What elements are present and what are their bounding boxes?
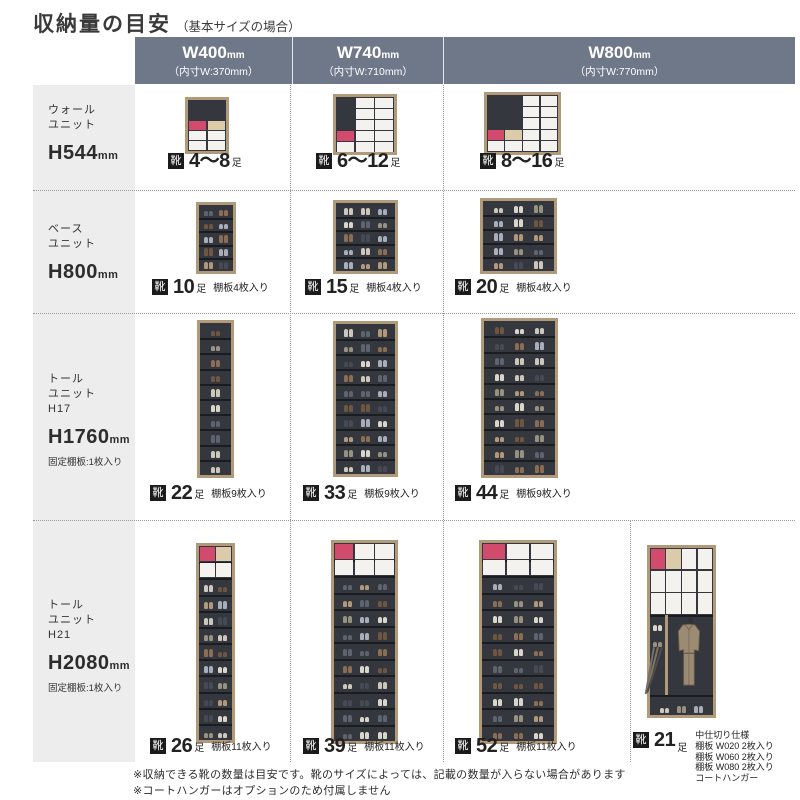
shoe-box xyxy=(698,593,712,614)
shoe xyxy=(348,666,352,673)
shelf-board xyxy=(482,675,554,677)
shoe xyxy=(539,683,543,690)
shelf-board xyxy=(200,429,231,431)
shelf-board xyxy=(482,576,554,578)
shoe xyxy=(204,635,208,641)
unit-height: H544mm xyxy=(48,142,118,165)
shelf-board xyxy=(336,384,395,386)
shoe xyxy=(349,208,353,214)
shoe-box xyxy=(682,593,696,614)
tall-unit-h21-w400-illustration xyxy=(196,543,235,743)
shoe xyxy=(209,618,213,625)
shelf-board xyxy=(199,692,232,694)
shoe xyxy=(348,616,352,624)
shoe xyxy=(204,700,208,705)
shoe xyxy=(499,208,503,213)
shoe xyxy=(211,451,215,458)
shoe xyxy=(493,699,497,706)
shoe-box xyxy=(355,560,374,575)
unit-name: ベースユニット xyxy=(48,222,118,252)
shoe-box xyxy=(523,107,539,117)
shoe xyxy=(499,233,503,241)
shoe-box xyxy=(507,544,530,559)
capacity-count: 15 xyxy=(326,277,347,297)
shoe xyxy=(519,684,523,689)
shoe-box xyxy=(375,109,393,119)
shoe xyxy=(383,601,387,607)
shoe xyxy=(209,262,213,269)
shoe xyxy=(535,328,539,334)
shoe xyxy=(494,263,498,269)
shoe xyxy=(499,263,503,269)
tall-unit-h21-divider-coat-illustration xyxy=(647,545,716,718)
capacity-count: 22 xyxy=(171,483,192,503)
shoe xyxy=(360,683,364,689)
shoe-box xyxy=(541,107,557,117)
shelf-board xyxy=(199,258,233,260)
shelf-board xyxy=(334,609,395,611)
shoe xyxy=(216,451,220,458)
shelf-board xyxy=(482,708,554,710)
shoe xyxy=(361,404,365,412)
capacity-count: 8〜16 xyxy=(501,151,552,171)
shoe xyxy=(218,617,222,625)
shoe xyxy=(534,601,538,607)
shoe xyxy=(498,683,502,689)
shelf-board xyxy=(482,659,554,661)
shoe-box xyxy=(375,120,393,130)
shoe xyxy=(365,683,369,689)
shelf-board xyxy=(483,243,554,245)
shoe xyxy=(344,391,348,397)
unit-name-line: ベース xyxy=(48,222,118,237)
shoe-box xyxy=(666,549,680,570)
shelf-count-note: 棚板4枚入り xyxy=(516,279,572,294)
wall-unit-w740-illustration xyxy=(333,94,397,155)
shoe xyxy=(515,375,519,380)
shoe xyxy=(349,437,353,442)
shoe xyxy=(519,668,523,673)
shelf-board xyxy=(336,399,395,401)
shoe xyxy=(495,389,499,396)
shoe xyxy=(204,602,208,608)
shoe xyxy=(366,344,370,352)
shoe xyxy=(535,391,539,396)
base-unit-w740-illustration xyxy=(333,200,398,274)
shelf-board xyxy=(334,593,395,595)
capacity-count: 6〜12 xyxy=(337,151,388,171)
shoe xyxy=(348,684,352,689)
shoe-box xyxy=(698,549,712,570)
shoe xyxy=(361,419,365,427)
shoe-box xyxy=(666,593,680,614)
shelf-board xyxy=(482,725,554,727)
capacity-count: 26 xyxy=(171,736,192,756)
shoe xyxy=(204,237,208,243)
shoe-box xyxy=(356,98,374,108)
shoe xyxy=(535,358,539,365)
column-width-label: W800mm xyxy=(444,44,795,65)
shoe xyxy=(218,652,222,657)
shelf-board xyxy=(336,459,395,461)
unit-name-line: H21 xyxy=(48,628,130,643)
shoe xyxy=(361,376,365,382)
shoe xyxy=(539,617,543,624)
shoe xyxy=(378,262,382,269)
shoe xyxy=(383,649,387,656)
shoe-box xyxy=(507,560,530,575)
shoe xyxy=(218,683,222,689)
capacity-unit: 足 xyxy=(499,486,509,501)
shoe xyxy=(500,344,504,350)
shoe xyxy=(366,450,370,457)
shoe-box xyxy=(651,571,665,592)
shoe xyxy=(515,391,519,396)
shoe xyxy=(204,666,208,673)
capacity-label: 靴22足棚板9枚入り xyxy=(150,483,267,503)
shoe xyxy=(495,374,499,380)
shoe xyxy=(539,716,543,723)
spec-note-line: 中仕切り仕様 xyxy=(695,730,795,741)
shelf-board xyxy=(200,445,231,447)
shoe xyxy=(540,391,544,396)
shoe-box xyxy=(208,121,226,130)
shoe xyxy=(378,360,382,367)
shoe xyxy=(378,406,382,412)
shoe xyxy=(211,467,215,473)
shoe xyxy=(514,649,518,656)
capacity-label: 靴20足棚板4枚入り xyxy=(455,277,572,297)
shoe-box xyxy=(356,109,374,119)
shelf-board xyxy=(482,692,554,694)
shoe xyxy=(500,389,504,396)
shoe xyxy=(378,632,382,640)
tall-unit-h17-w400-illustration xyxy=(197,320,234,478)
shoe xyxy=(519,234,523,241)
base-unit-w400-illustration xyxy=(196,202,236,274)
shoe xyxy=(539,601,543,607)
capacity-count: 21 xyxy=(654,730,675,750)
shoe xyxy=(514,249,518,255)
shoe xyxy=(534,701,538,706)
shoe xyxy=(216,376,220,382)
shelf-board xyxy=(484,367,555,369)
row-labels-column: ウォールユニットH544mmベースユニットH800mmトールユニットH17H17… xyxy=(33,85,135,762)
shoe xyxy=(519,601,523,607)
shoe-box xyxy=(505,130,521,140)
shoe xyxy=(223,652,227,657)
shoe xyxy=(515,343,519,350)
shoe xyxy=(216,467,220,473)
capacity-label: 靴6〜12足 xyxy=(316,151,400,171)
column-header-w800: W800mm （内寸W:770mm） xyxy=(443,37,795,84)
shoe xyxy=(520,467,524,473)
shoe xyxy=(223,587,227,593)
shoe xyxy=(348,635,352,640)
shelf-board xyxy=(484,398,555,400)
shoe xyxy=(219,224,223,229)
shoe-box xyxy=(523,96,539,106)
shoe xyxy=(378,329,382,337)
shelf-board xyxy=(484,429,555,431)
shoe xyxy=(223,635,227,641)
shoe xyxy=(219,262,223,269)
shoe xyxy=(209,635,213,641)
shoe-box xyxy=(189,131,207,140)
shoe xyxy=(498,601,502,607)
shelf-board xyxy=(336,444,395,446)
footnote-coathanger-option: ※コートハンガーはオプションのため付属しません xyxy=(133,782,391,798)
shoe xyxy=(383,236,387,242)
shoe xyxy=(378,617,382,623)
shoe-box xyxy=(375,560,394,575)
shelf-count-note: 棚板9枚入り xyxy=(211,485,267,500)
shoe xyxy=(204,649,208,657)
capacity-label: 靴15足棚板4枚入り xyxy=(305,277,422,297)
shoe xyxy=(360,717,364,722)
shoe xyxy=(540,328,544,334)
capacity-unit: 足 xyxy=(499,280,509,295)
shoe xyxy=(514,633,518,640)
shoe xyxy=(498,716,502,723)
shoe-box xyxy=(200,547,215,562)
shoe xyxy=(495,420,499,427)
capacity-count: 44 xyxy=(476,483,497,503)
shoe xyxy=(365,666,369,673)
unit-height-value: H544 xyxy=(48,142,98,164)
column-width-label: W740mm xyxy=(293,44,443,65)
shoe xyxy=(344,347,348,352)
shoe xyxy=(216,405,220,412)
shoe xyxy=(520,450,524,457)
shoe xyxy=(500,420,504,427)
unit-label-block: トールユニットH21H2080mm固定棚板:1枚入り xyxy=(48,598,130,694)
shoe xyxy=(209,224,213,229)
shoe-box xyxy=(523,118,539,128)
shoe xyxy=(211,389,215,397)
shoe xyxy=(344,467,348,472)
shoe xyxy=(209,666,213,673)
shoe xyxy=(360,617,364,624)
shoe xyxy=(204,618,208,625)
capacity-count: 39 xyxy=(324,736,345,756)
shoe xyxy=(494,221,498,227)
shoe xyxy=(539,665,543,673)
shelf-board xyxy=(199,643,232,645)
shoe xyxy=(343,715,347,723)
shoe xyxy=(349,347,353,352)
shoe xyxy=(366,404,370,412)
capacity-label: 靴26足棚板11枚入り xyxy=(150,736,272,756)
shelf-board xyxy=(199,218,233,220)
shoe xyxy=(520,403,524,411)
shoe xyxy=(535,452,539,458)
shoe xyxy=(344,234,348,242)
shoe xyxy=(539,220,543,227)
shoe-box xyxy=(531,560,554,575)
shoe xyxy=(366,391,370,397)
shoe-box xyxy=(335,544,354,559)
shelf-count-note: 棚板11枚入り xyxy=(364,738,424,753)
shelf-board xyxy=(484,444,555,446)
shoe-box xyxy=(335,560,354,575)
shoe xyxy=(365,585,369,590)
shoe xyxy=(204,682,208,690)
unit-name-line: ウォール xyxy=(48,103,118,118)
shoe xyxy=(539,701,543,706)
shoe xyxy=(349,262,353,269)
shoe xyxy=(211,435,215,443)
unit-name-line: ユニット xyxy=(48,613,130,628)
shoe xyxy=(344,450,348,457)
shoe xyxy=(378,421,382,427)
capacity-unit: 足 xyxy=(554,154,564,169)
shoe-chip: 靴 xyxy=(168,153,184,169)
shoe xyxy=(498,634,502,640)
shoe xyxy=(535,406,539,411)
tall-unit-h21-w800-illustration xyxy=(479,540,557,744)
unit-name-line: ユニット xyxy=(48,118,118,133)
shoe xyxy=(378,436,382,442)
shoe xyxy=(378,601,382,607)
shoe xyxy=(349,450,353,457)
unit-height-unit: mm xyxy=(98,269,119,281)
unit-height: H1760mm xyxy=(48,426,130,449)
shoe xyxy=(378,236,382,242)
shelf-count-note: 棚板11枚入り xyxy=(211,738,271,753)
shoe xyxy=(493,634,497,640)
capacity-unit: 足 xyxy=(349,280,359,295)
shoe xyxy=(514,262,518,269)
shoe xyxy=(360,633,364,640)
shelf-count-note: 棚板4枚入り xyxy=(366,279,422,294)
shoe xyxy=(366,376,370,382)
shoe xyxy=(493,601,497,607)
shoe xyxy=(361,208,365,214)
shoe-chip: 靴 xyxy=(455,738,471,754)
shoe xyxy=(218,601,222,608)
shoe xyxy=(520,375,524,380)
fixed-shelf-note: 固定棚板:1枚入り xyxy=(48,454,130,468)
shoe xyxy=(540,435,544,442)
shoe xyxy=(218,635,222,641)
shoe-box xyxy=(541,118,557,128)
shelf-board xyxy=(482,642,554,644)
shelf-board xyxy=(334,576,395,578)
shelf-board xyxy=(650,615,713,617)
shoe-chip: 靴 xyxy=(316,153,332,169)
shelf-board xyxy=(336,369,395,371)
shoe xyxy=(499,248,503,255)
shoe xyxy=(493,649,497,657)
shoe xyxy=(343,700,347,706)
shoe-chip: 靴 xyxy=(303,485,319,501)
column-header-w400: W400mm （内寸W:370mm） xyxy=(135,37,292,84)
shoe xyxy=(383,632,387,640)
shoe xyxy=(383,391,387,397)
shoe xyxy=(500,465,504,473)
shoe xyxy=(378,375,382,382)
shoe-box xyxy=(356,131,374,141)
shoe-box xyxy=(523,130,539,140)
shelf-board xyxy=(483,229,554,231)
shoe xyxy=(500,327,504,334)
shoe xyxy=(694,706,698,713)
shoe xyxy=(383,466,387,472)
capacity-count: 4〜8 xyxy=(189,151,230,171)
shoe xyxy=(514,684,518,689)
shelf-board xyxy=(199,724,232,726)
shoe-chip: 靴 xyxy=(150,738,166,754)
shoe xyxy=(540,342,544,350)
shelf-board xyxy=(199,245,233,247)
shoe xyxy=(361,344,365,352)
shelf-board xyxy=(334,708,395,710)
capacity-unit: 足 xyxy=(347,739,357,754)
column-divider xyxy=(290,85,291,762)
shoe xyxy=(653,625,657,631)
shoe xyxy=(366,234,370,241)
unit-label-block: ベースユニットH800mm xyxy=(48,222,118,284)
shoe xyxy=(378,466,382,472)
shoe xyxy=(494,208,498,213)
shelf-board xyxy=(336,230,395,232)
shelf-board xyxy=(336,217,395,219)
column-inner-width-label: （内寸W:710mm） xyxy=(293,65,443,79)
shoe xyxy=(209,211,213,217)
shelf-board xyxy=(199,611,232,613)
shoe xyxy=(534,235,538,241)
shoe xyxy=(219,249,223,256)
shoe-box xyxy=(682,571,696,592)
page-title-row: 収納量の目安 （基本サイズの場合） xyxy=(33,8,301,38)
shelf-board xyxy=(483,215,554,217)
shoe xyxy=(343,666,347,673)
shoe xyxy=(218,716,222,722)
shoe xyxy=(349,362,353,367)
shoe xyxy=(349,375,353,382)
shoe-box xyxy=(698,571,712,592)
shoe xyxy=(515,437,519,442)
shoe xyxy=(535,465,539,473)
shelf-board xyxy=(200,353,231,355)
shoe xyxy=(520,391,524,396)
shelf-board xyxy=(336,244,395,246)
shoe xyxy=(383,360,387,367)
shoe xyxy=(495,452,499,457)
shoe xyxy=(224,262,228,269)
shoe xyxy=(515,329,519,335)
fixed-shelf-note: 固定棚板:1枚入り xyxy=(48,680,130,694)
shoe xyxy=(218,587,222,593)
shoe xyxy=(211,346,215,351)
capacity-label: 靴44足棚板9枚入り xyxy=(455,483,572,503)
unit-height: H2080mm xyxy=(48,652,130,675)
shoe xyxy=(520,358,524,365)
shoe xyxy=(534,205,538,213)
shelf-count-note: 棚板4枚入り xyxy=(213,279,269,294)
unit-name: トールユニットH17 xyxy=(48,372,130,417)
shoe xyxy=(378,668,382,673)
shelf-board xyxy=(484,413,555,415)
shelf-board xyxy=(200,460,231,462)
capacity-unit: 足 xyxy=(677,739,687,754)
shoe xyxy=(360,700,364,706)
shoe-chip: 靴 xyxy=(305,279,321,295)
shoe xyxy=(224,235,228,243)
shoe xyxy=(348,715,352,723)
unit-name-line: H17 xyxy=(48,402,130,417)
